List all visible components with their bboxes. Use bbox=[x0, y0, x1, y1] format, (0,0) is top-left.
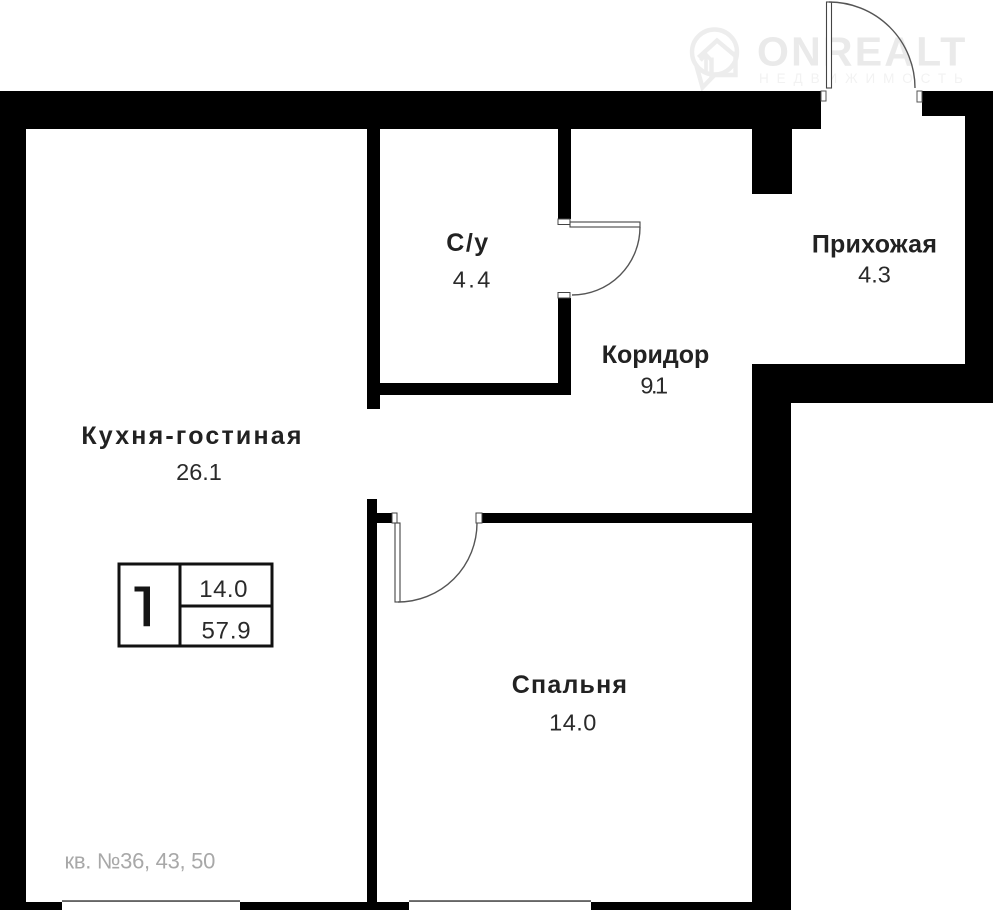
svg-text:26.1: 26.1 bbox=[176, 459, 222, 485]
svg-text:Прихожая: Прихожая bbox=[812, 231, 937, 259]
svg-text:Кухня-гостиная: Кухня-гостиная bbox=[81, 422, 303, 450]
svg-text:Спальня: Спальня bbox=[512, 671, 628, 699]
svg-text:С/у: С/у bbox=[446, 229, 489, 257]
svg-text:4.4: 4.4 bbox=[453, 266, 493, 292]
svg-text:НЕДВИЖИМОСТЬ: НЕДВИЖИМОСТЬ bbox=[759, 71, 971, 86]
svg-text:57.9: 57.9 bbox=[202, 617, 252, 644]
svg-text:4.3: 4.3 bbox=[858, 261, 891, 287]
svg-text:14.0: 14.0 bbox=[199, 576, 248, 603]
svg-text:14.0: 14.0 bbox=[549, 710, 597, 736]
svg-text:9.1: 9.1 bbox=[640, 373, 667, 399]
svg-text:кв. №36, 43, 50: кв. №36, 43, 50 bbox=[65, 849, 216, 874]
svg-text:ONREALT: ONREALT bbox=[757, 29, 968, 75]
svg-text:Коридор: Коридор bbox=[602, 341, 710, 369]
